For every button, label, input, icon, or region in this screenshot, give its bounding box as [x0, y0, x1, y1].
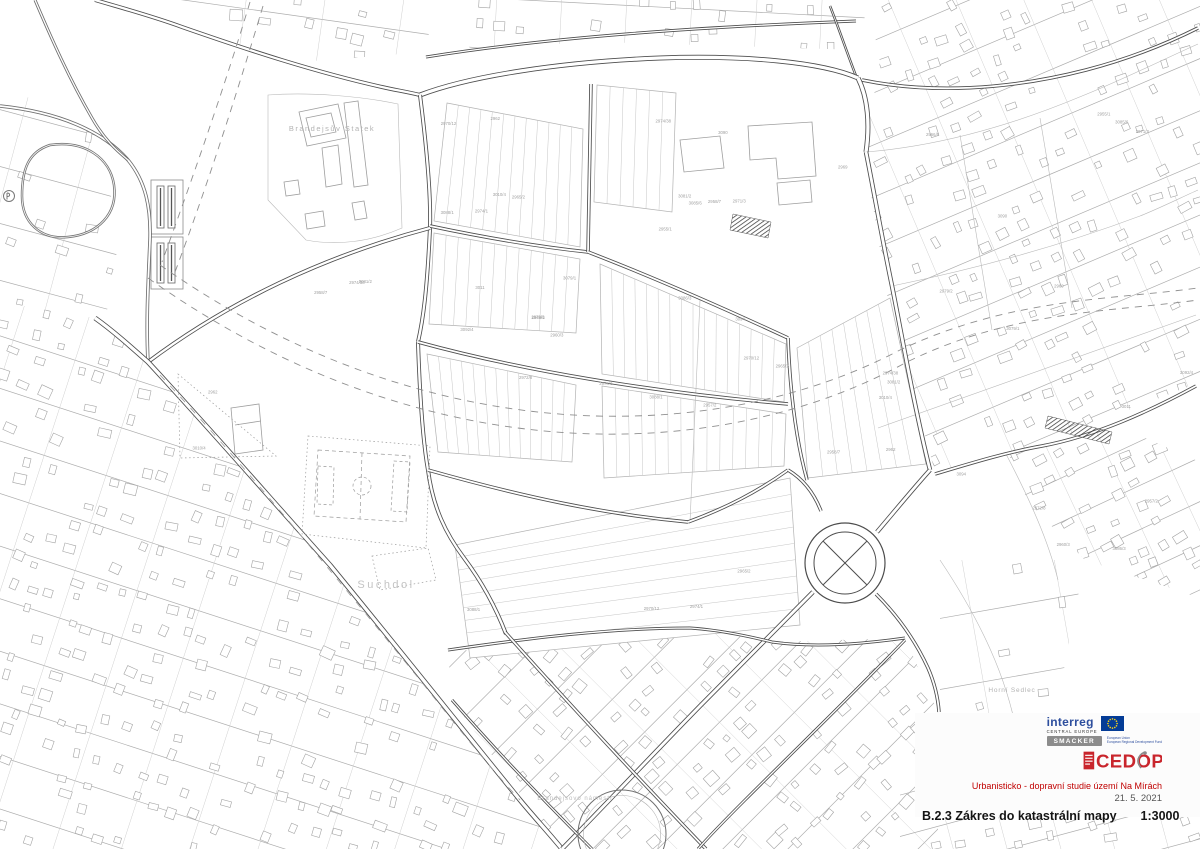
svg-text:2955/1: 2955/1: [659, 227, 673, 232]
map-label-farm: Brandejsův Statek: [289, 124, 375, 133]
svg-text:3079/1: 3079/1: [563, 276, 577, 281]
svg-text:2958/7: 2958/7: [708, 199, 722, 204]
svg-text:3085/6: 3085/6: [1115, 120, 1129, 125]
svg-text:3090: 3090: [718, 130, 728, 135]
study-subtitle: Urbanisticko - dopravní studie území Na …: [972, 781, 1162, 791]
cedop-logo: CEDOP: [1083, 749, 1162, 777]
cedop-mark-icon: [1084, 752, 1095, 770]
svg-text:2970/12: 2970/12: [744, 355, 760, 360]
svg-text:2971/3: 2971/3: [733, 199, 747, 204]
svg-text:2965/2: 2965/2: [776, 363, 790, 368]
strip-parcel-block: [797, 298, 926, 478]
svg-text:3010/4: 3010/4: [193, 446, 207, 451]
smacker-badge: SMACKER: [1047, 736, 1102, 746]
svg-text:3088/1: 3088/1: [649, 394, 663, 399]
svg-text:3090: 3090: [998, 214, 1008, 219]
svg-text:3094: 3094: [957, 472, 967, 477]
svg-text:3079/1: 3079/1: [1006, 326, 1020, 331]
parking-icon: [4, 191, 15, 202]
svg-text:2974/38: 2974/38: [656, 118, 672, 123]
map-sheet: 2974/12965/23088/12970/123010/429623081/…: [0, 0, 1200, 849]
svg-text:2972/8: 2972/8: [519, 375, 533, 380]
svg-text:2962: 2962: [491, 116, 501, 121]
svg-text:2958/7: 2958/7: [827, 450, 841, 455]
svg-text:3094: 3094: [735, 317, 745, 322]
svg-text:2969: 2969: [1054, 284, 1064, 289]
svg-text:3092/4: 3092/4: [1180, 370, 1194, 375]
svg-text:3010/4: 3010/4: [879, 395, 893, 400]
svg-text:3085/6: 3085/6: [689, 200, 703, 205]
svg-text:2962: 2962: [886, 447, 896, 452]
svg-text:3081/2: 3081/2: [678, 194, 692, 199]
interreg-wordmark: interreg: [1047, 716, 1098, 728]
eu-flag-icon: [1101, 716, 1124, 731]
svg-text:3011: 3011: [1122, 404, 1132, 409]
svg-text:2974/1: 2974/1: [690, 604, 704, 609]
svg-text:2971/3: 2971/3: [1136, 129, 1150, 134]
svg-text:2955/1: 2955/1: [1097, 111, 1111, 116]
svg-text:3011: 3011: [475, 285, 485, 290]
svg-text:3086/3: 3086/3: [678, 296, 692, 301]
greenhouse-structures: [151, 180, 183, 289]
strip-parcel-block: [594, 85, 676, 212]
svg-text:2965/2: 2965/2: [512, 194, 526, 199]
svg-text:2979/2: 2979/2: [940, 289, 954, 294]
svg-text:2957/2: 2957/2: [703, 403, 717, 408]
title-block: interreg CENTRAL EUROPE SMACKE: [915, 713, 1200, 817]
svg-text:2970/12: 2970/12: [644, 606, 660, 611]
svg-text:2957/2: 2957/2: [1145, 499, 1159, 504]
strip-parcel-block: [427, 354, 576, 462]
map-label-district: Suchdol: [357, 579, 414, 591]
svg-text:3088/1: 3088/1: [467, 607, 481, 612]
eu-caption-line2: European Regional Development Fund: [1107, 740, 1162, 744]
svg-text:3081/2: 3081/2: [887, 380, 901, 385]
svg-text:3092/4: 3092/4: [460, 327, 474, 332]
svg-text:3010/4: 3010/4: [493, 192, 507, 197]
map-label-square: Brandejsovo náměstí: [537, 796, 612, 802]
sheet-title: B.2.3 Zákres do katastrální mapy: [922, 809, 1117, 823]
svg-text:2966/5: 2966/5: [532, 315, 546, 320]
svg-text:3088/1: 3088/1: [441, 210, 455, 215]
svg-text:2958/7: 2958/7: [314, 290, 328, 295]
svg-text:2974/1: 2974/1: [475, 209, 489, 214]
svg-text:2965/2: 2965/2: [737, 569, 751, 574]
svg-text:2966/5: 2966/5: [926, 132, 940, 137]
sports-field: [178, 374, 436, 590]
svg-text:2974/1: 2974/1: [599, 381, 613, 386]
svg-text:2970/12: 2970/12: [441, 121, 457, 126]
roundabout: [805, 523, 885, 603]
svg-text:2974/38: 2974/38: [349, 280, 365, 285]
map-label-locality: Horní Sedlec: [988, 687, 1035, 694]
svg-text:3086/3: 3086/3: [1113, 546, 1127, 551]
cedop-wordmark: CEDOP: [1096, 751, 1162, 772]
interreg-logo: interreg CENTRAL EUROPE SMACKE: [1047, 716, 1162, 746]
sheet-date: 21. 5. 2021: [1114, 793, 1162, 804]
svg-text:2960/3: 2960/3: [550, 333, 564, 338]
svg-text:2962: 2962: [208, 389, 218, 394]
interreg-programme: CENTRAL EUROPE: [1047, 729, 1098, 734]
cedop-figure-head: [1143, 751, 1147, 755]
svg-text:2972/8: 2972/8: [1032, 506, 1046, 511]
svg-text:2974/38: 2974/38: [883, 371, 899, 376]
strip-parcel-block: [434, 103, 583, 247]
svg-text:2969: 2969: [838, 165, 848, 170]
svg-text:2960/3: 2960/3: [1057, 542, 1071, 547]
strip-parcel-block: [600, 264, 786, 402]
sheet-scale: 1:3000: [1141, 809, 1180, 823]
